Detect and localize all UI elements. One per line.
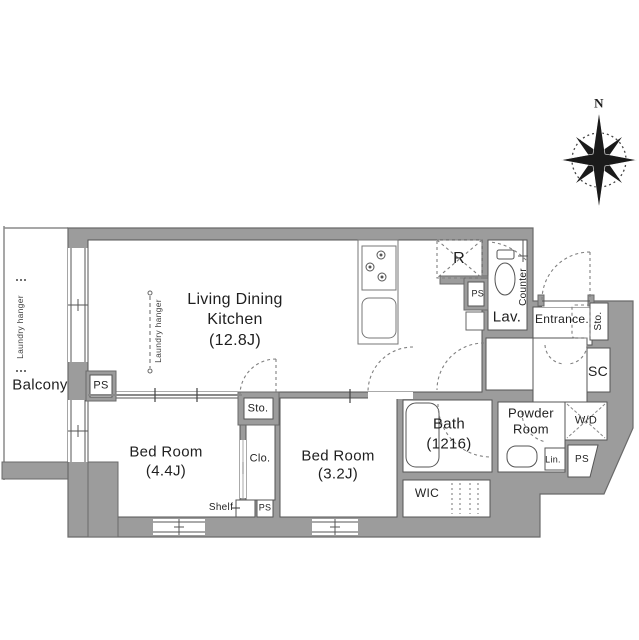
bath-label: Bath (433, 417, 465, 432)
ps-kitchen-label: PS (472, 289, 481, 300)
laundry-line-end-bottom (148, 369, 152, 373)
balcony-laundry-hanger-label: Laundry hanger (16, 295, 25, 359)
balcony-rail-line (4, 226, 68, 480)
closet-label: Clo. (250, 454, 271, 465)
left-windows (68, 248, 88, 462)
bath-size-label: (1216) (426, 437, 471, 452)
laundry-line-end-top (148, 291, 152, 295)
sto-entrance-label: Sto. (594, 312, 604, 331)
hall-niche (466, 312, 484, 330)
compass-star-main (561, 112, 637, 208)
bedroom1-size-label: (4.4J) (146, 464, 186, 479)
balcony-area (2, 226, 68, 480)
ldk-label-line1: Living Dining (187, 292, 283, 308)
shoe-closet-label: SC (588, 364, 608, 378)
ldk-size-label: (12.8J) (209, 333, 261, 349)
corner-wall-block (88, 462, 118, 537)
kitchen-sink (362, 298, 396, 338)
compass-rose (561, 112, 637, 208)
balcony-end-wall (2, 462, 68, 479)
shelf-label: Shelf (209, 503, 233, 513)
wic-label: WIC (415, 487, 439, 499)
bedroom2-door-gap (368, 392, 413, 399)
bedroom2-label: Bed Room (301, 449, 374, 464)
corridor-floor (533, 338, 587, 402)
powder-sink (507, 446, 537, 467)
sto-ldk-label: Sto. (248, 404, 269, 415)
powder-room-label-line1: Powder (508, 407, 554, 420)
ldk-laundry-hanger-label: Laundry hanger (154, 299, 163, 363)
washer-dryer-label: W/D (575, 416, 597, 427)
refrigerator-label: R (453, 251, 465, 267)
counter-label: Counter (519, 268, 529, 306)
hallway-floor (486, 338, 533, 390)
powder-room-label-line2: Room (513, 423, 549, 436)
ps-bedroom-label: PS (259, 504, 272, 513)
ps-balcony-label: PS (93, 381, 108, 392)
toilet-bowl (495, 263, 515, 295)
floorplan-canvas: Living Dining Kitchen (12.8J) Balcony La… (0, 0, 639, 640)
bedroom2-size-label: (3.2J) (318, 467, 358, 482)
entrance-label: Entrance. (535, 313, 589, 325)
linen-label: Lin. (545, 456, 561, 465)
ldk-label-line2: Kitchen (207, 312, 262, 328)
balcony-label: Balcony (12, 378, 67, 393)
ps-corner-label: PS (575, 455, 589, 465)
lav-label: Lav. (493, 310, 521, 325)
bedroom1-label: Bed Room (129, 445, 202, 460)
entrance-door-arc (542, 252, 590, 300)
toilet-tank (497, 250, 514, 259)
compass-north-label: N (594, 97, 604, 110)
ldk-floor (88, 240, 482, 392)
